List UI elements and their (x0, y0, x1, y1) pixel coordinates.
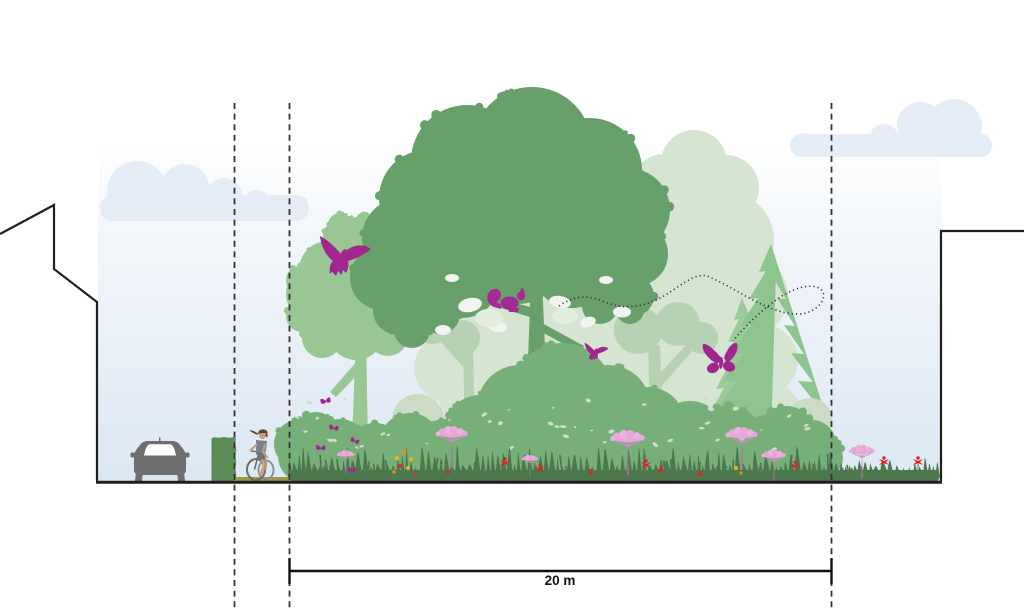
svg-text:20 m: 20 m (545, 573, 576, 588)
